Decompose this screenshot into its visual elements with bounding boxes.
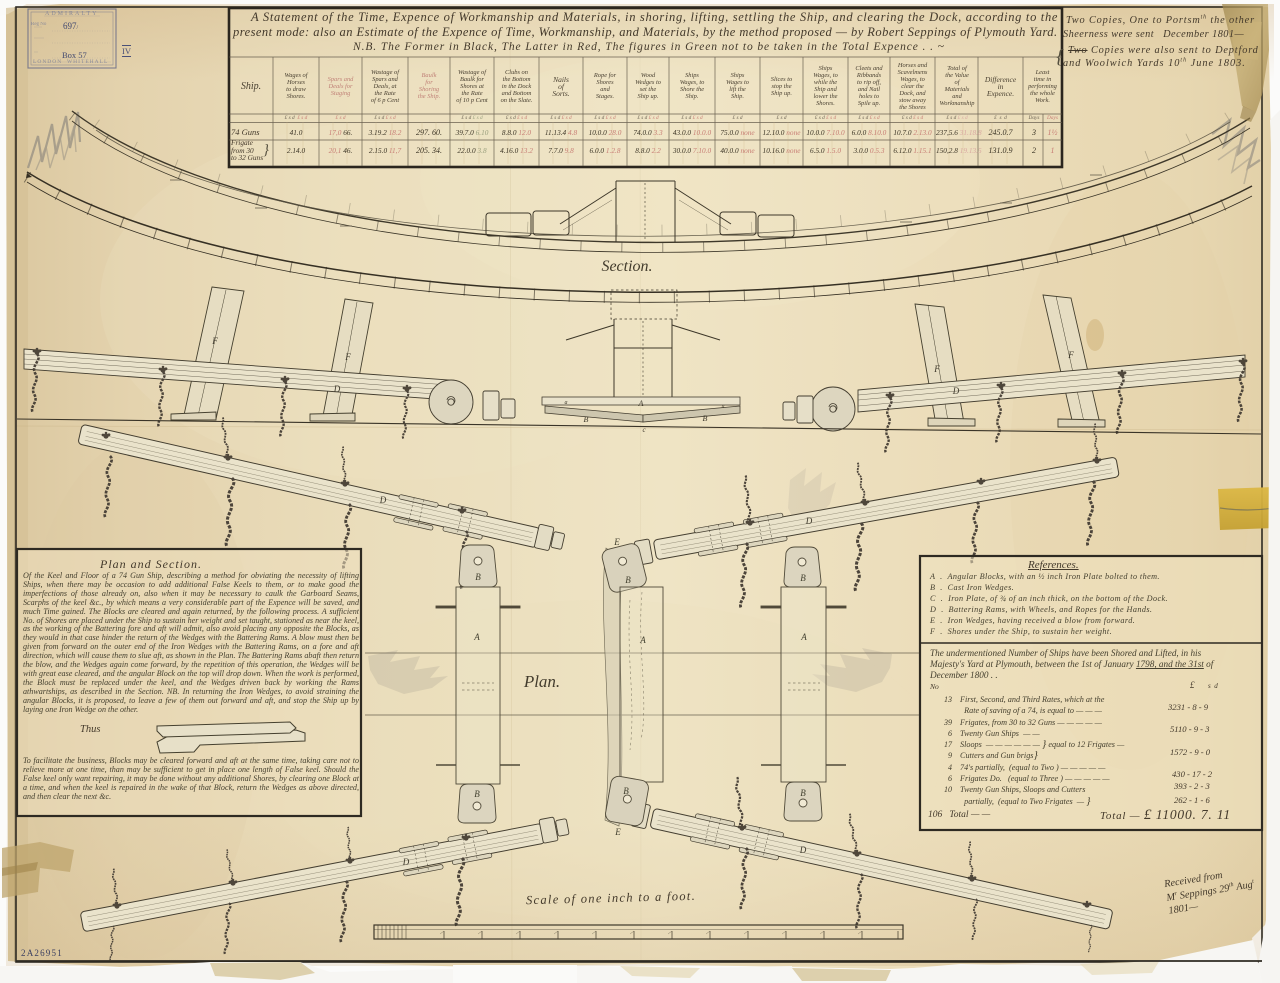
svg-text:D: D bbox=[799, 845, 807, 855]
svg-text:E: E bbox=[613, 537, 620, 547]
svg-text:B: B bbox=[584, 415, 589, 424]
svg-text:Section.: Section. bbox=[601, 258, 652, 275]
svg-text:a: a bbox=[565, 400, 568, 406]
svg-text:u: u bbox=[722, 404, 725, 410]
svg-text:Plan.: Plan. bbox=[523, 672, 560, 691]
svg-text:F: F bbox=[933, 364, 940, 374]
svg-text:B: B bbox=[800, 573, 806, 583]
svg-text:B: B bbox=[623, 786, 629, 796]
svg-text:D: D bbox=[333, 384, 341, 394]
svg-text:F: F bbox=[344, 352, 351, 362]
svg-text:B: B bbox=[625, 575, 631, 585]
svg-text:B: B bbox=[474, 789, 480, 799]
svg-text:D: D bbox=[402, 857, 410, 867]
svg-text:E: E bbox=[614, 827, 621, 837]
svg-text:A: A bbox=[638, 399, 644, 408]
svg-text:A: A bbox=[639, 635, 646, 645]
svg-text:D: D bbox=[952, 386, 960, 396]
svg-text:D: D bbox=[805, 516, 813, 526]
svg-text:A: A bbox=[473, 632, 480, 642]
svg-text:B: B bbox=[800, 788, 806, 798]
svg-text:B: B bbox=[703, 414, 708, 423]
svg-text:A: A bbox=[800, 632, 807, 642]
svg-text:B: B bbox=[475, 572, 481, 582]
svg-text:F: F bbox=[211, 336, 218, 346]
svg-text:D: D bbox=[379, 495, 387, 505]
svg-text:F: F bbox=[1067, 350, 1074, 360]
